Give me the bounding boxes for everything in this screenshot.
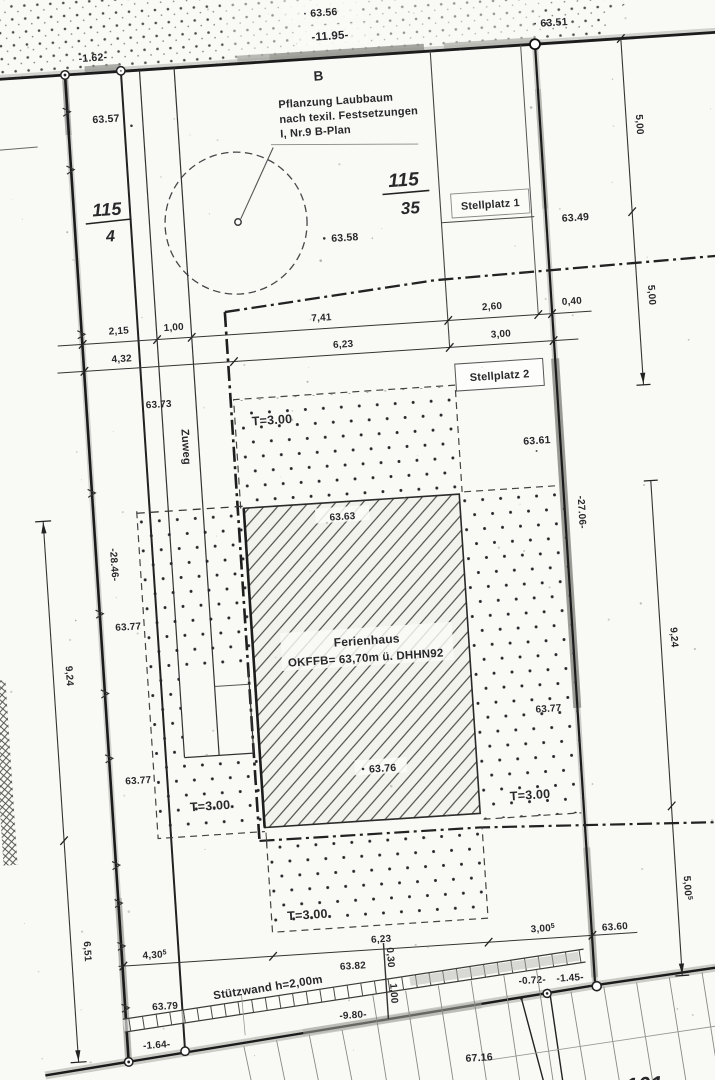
svg-text:5,00: 5,00 (633, 114, 645, 135)
svg-text:T=3.00: T=3.00 (509, 787, 550, 804)
svg-text:6,51: 6,51 (81, 941, 93, 962)
svg-text:67.16: 67.16 (465, 1051, 493, 1065)
svg-text:-1.45-: -1.45- (556, 972, 584, 985)
svg-text:63.76: 63.76 (369, 762, 397, 776)
svg-text:115: 115 (92, 199, 123, 221)
svg-text:63.60: 63.60 (602, 921, 629, 934)
svg-text:-1.64-: -1.64- (143, 1039, 171, 1052)
svg-text:T=3.00: T=3.00 (251, 412, 292, 429)
svg-text:9,24: 9,24 (667, 627, 679, 648)
svg-text:-27.06-: -27.06- (575, 495, 588, 529)
svg-text:-0.72-: -0.72- (518, 974, 546, 987)
svg-text:-9.80-: -9.80- (339, 1009, 367, 1022)
svg-text:-28.46-: -28.46- (107, 548, 120, 582)
svg-text:63.82: 63.82 (340, 960, 367, 973)
svg-text:63.79: 63.79 (152, 1001, 179, 1014)
svg-text:4: 4 (105, 228, 116, 246)
svg-text:3,00: 3,00 (490, 328, 511, 340)
svg-text:115: 115 (388, 169, 420, 192)
svg-text:T=3.00: T=3.00 (189, 798, 230, 815)
svg-text:63.61: 63.61 (523, 434, 551, 448)
svg-text:6,23: 6,23 (371, 934, 392, 946)
svg-text:0,40: 0,40 (561, 296, 582, 308)
svg-text:1,00: 1,00 (387, 983, 399, 1004)
svg-text:6,23: 6,23 (333, 339, 354, 351)
svg-text:0,30: 0,30 (384, 947, 396, 968)
svg-text:-11.95-: -11.95- (311, 29, 349, 43)
svg-text:2,15: 2,15 (108, 325, 129, 337)
svg-text:63.58: 63.58 (331, 231, 359, 245)
svg-text:Zuweg: Zuweg (178, 429, 192, 466)
svg-text:B: B (313, 68, 324, 84)
svg-text:63.57: 63.57 (92, 113, 120, 127)
svg-text:· 63.56: · 63.56 (303, 6, 338, 20)
svg-text:63.49: 63.49 (561, 211, 589, 225)
svg-text:7,41: 7,41 (311, 312, 332, 324)
svg-text:T=3.00: T=3.00 (287, 907, 328, 924)
svg-text:63.73: 63.73 (145, 399, 172, 412)
svg-text:1,00: 1,00 (163, 322, 184, 334)
svg-text:101: 101 (625, 1071, 664, 1080)
svg-text:63.63: 63.63 (329, 511, 356, 524)
svg-text:4,32: 4,32 (111, 353, 132, 365)
svg-text:· 63.51: · 63.51 (533, 16, 568, 30)
svg-text:9,24: 9,24 (63, 666, 75, 687)
svg-text:63.77: 63.77 (115, 621, 142, 634)
svg-text:2,60: 2,60 (482, 301, 503, 313)
svg-text:63.77: 63.77 (125, 775, 152, 788)
svg-text:-1.62-: -1.62- (78, 51, 108, 65)
svg-text:5,00: 5,00 (645, 285, 657, 306)
svg-text:63.77: 63.77 (535, 703, 562, 716)
svg-text:35: 35 (400, 198, 421, 218)
